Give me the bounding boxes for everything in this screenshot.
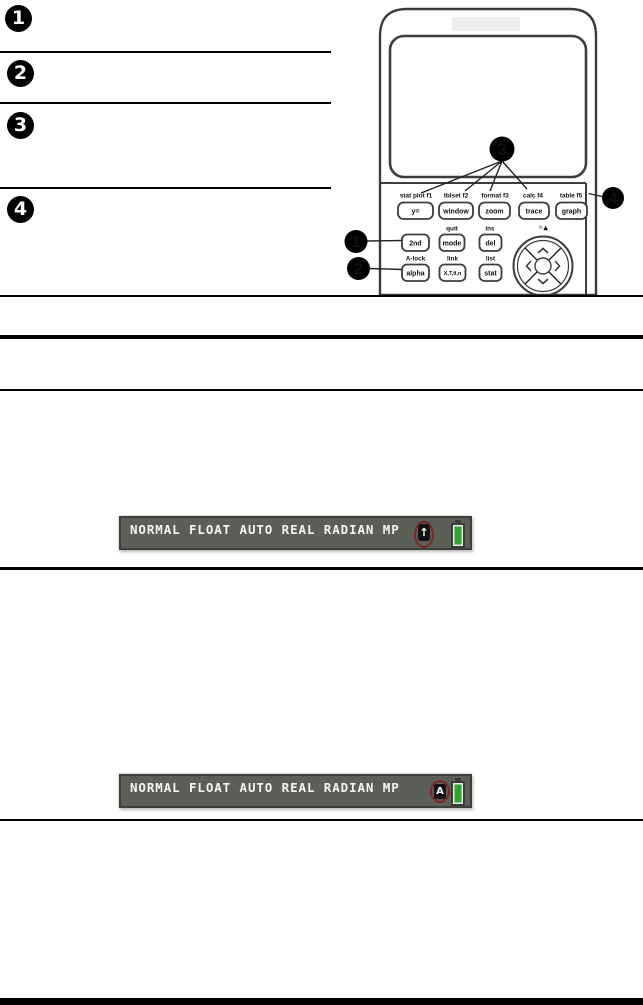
legend-divider	[0, 102, 331, 104]
legend-number-1: 1	[5, 5, 32, 32]
battery-icon	[451, 778, 465, 806]
callout-2-number: 2	[354, 261, 363, 278]
key-label-ins: ins	[485, 226, 495, 233]
callout-3-number: 3	[497, 140, 506, 159]
2nd-key-text: 2nd	[409, 241, 421, 248]
statusbar-text: NORMAL FLOAT AUTO REAL RADIAN MP	[130, 780, 400, 795]
key-label-link: link	[447, 256, 458, 263]
key-label-statplot-f1: stat plot f1	[400, 193, 433, 200]
zoom-key-text: zoom	[485, 209, 503, 216]
statusbar-screenshot-2nd: NORMAL FLOAT AUTO REAL RADIAN MP ↑	[119, 516, 472, 550]
window-key-text: window	[442, 209, 469, 216]
statusbar-text: NORMAL FLOAT AUTO REAL RADIAN MP	[130, 522, 400, 537]
graph-key-text: graph	[562, 209, 581, 216]
key-label-table-f5: table f5	[560, 193, 583, 200]
section-divider	[0, 389, 643, 391]
key-label-list: list	[486, 256, 496, 263]
calculator-keyboard-figure: stat plot f1 tblset f2 format f3 calc f4…	[335, 0, 643, 296]
xton-key-text: X,T,θ,n	[444, 271, 462, 277]
legend-divider	[0, 187, 331, 189]
highlight-circle-icon	[430, 780, 450, 803]
mode-key-text: mode	[443, 241, 462, 248]
key-label-quit: quit	[446, 226, 459, 233]
brand-label-area	[452, 17, 520, 31]
section-divider	[0, 295, 643, 297]
trace-key-text: trace	[526, 209, 543, 216]
del-key-text: del	[485, 241, 495, 248]
y=-key-text: y=	[412, 209, 420, 216]
legend-number-2: 2	[7, 60, 34, 87]
battery-icon	[451, 520, 465, 548]
key-label-tblset-f2: tblset f2	[444, 193, 469, 200]
brightness-icon: ☼▲	[538, 225, 548, 232]
legend-divider	[0, 51, 331, 53]
battery-body	[451, 781, 465, 806]
key-label-format-f3: format f3	[481, 193, 509, 200]
callout-4-number: 4	[609, 191, 618, 208]
section-divider-thick	[0, 335, 643, 339]
stat-key-text: stat	[484, 271, 497, 278]
battery-body	[451, 523, 465, 548]
key-label-alock: A-lock	[406, 256, 426, 263]
page-bottom-bar	[0, 998, 643, 1005]
statusbar-screenshot-alpha: NORMAL FLOAT AUTO REAL RADIAN MP A	[119, 774, 472, 808]
section-divider	[0, 819, 643, 822]
callout-1-number: 1	[352, 234, 361, 251]
legend-number-3: 3	[7, 112, 34, 139]
calculator-screen	[390, 36, 586, 177]
legend-number-4: 4	[7, 196, 34, 223]
key-label-calc-f4: calc f4	[523, 193, 543, 200]
alpha-key-text: alpha	[406, 271, 424, 278]
highlight-circle-icon	[414, 521, 434, 548]
section-divider-thick	[0, 567, 643, 570]
